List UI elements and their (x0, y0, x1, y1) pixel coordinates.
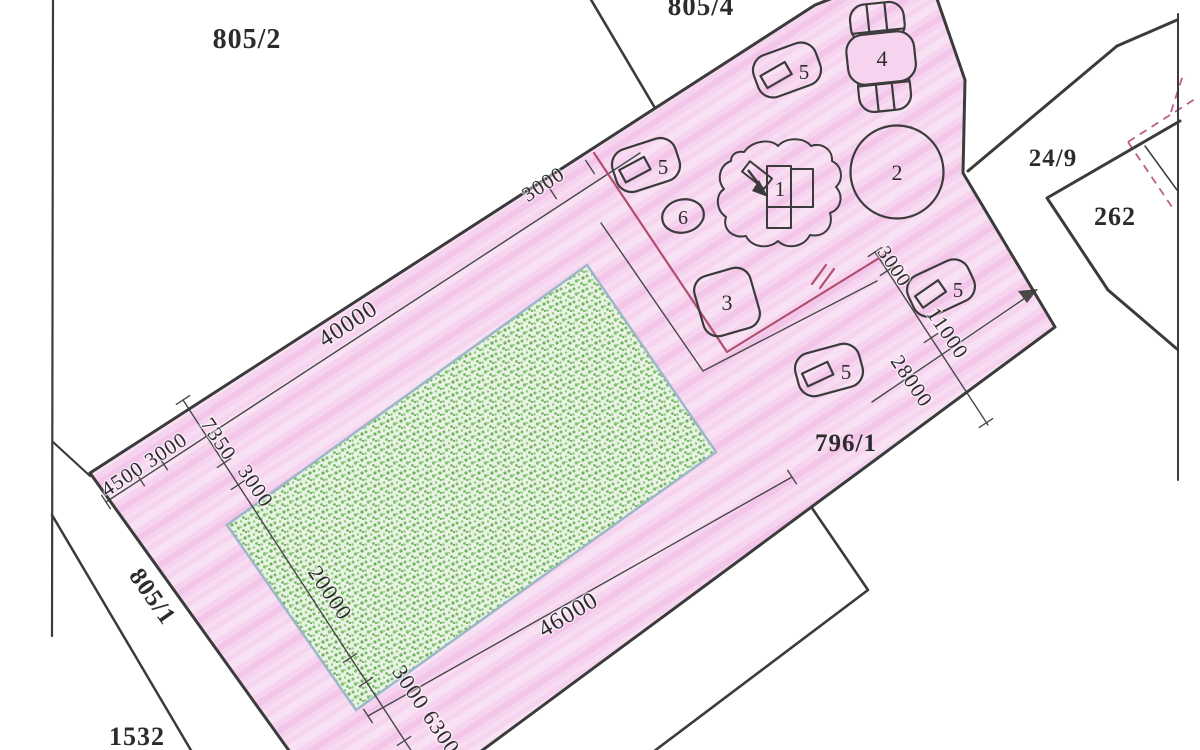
bench-label: 5 (658, 155, 669, 179)
equipment-4-label: 4 (877, 46, 888, 71)
left-corner-connector (53, 442, 90, 476)
left-vertical-boundary (52, 0, 53, 636)
equipment-1-label: 1 (775, 177, 786, 201)
parcel-label-1532: 1532 (109, 722, 165, 750)
parcel-label-796-1: 796/1 (815, 430, 877, 457)
parcel-label-805-4: 805/4 (668, 0, 735, 21)
bench-label: 5 (953, 278, 964, 302)
bench-label: 5 (799, 60, 810, 84)
dashed-boundary-lines (1128, 72, 1198, 207)
plan-canvas: 5 5 5 5 4 (0, 0, 1200, 750)
cadastral-site-plan: 5 5 5 5 4 (0, 0, 1200, 750)
parcel-label-805-2: 805/2 (213, 24, 282, 55)
parcel-label-262: 262 (1094, 202, 1136, 231)
equipment-3-label: 3 (722, 290, 733, 315)
thin-boundary-line (1145, 146, 1177, 190)
parcel-label-24-9: 24/9 (1029, 145, 1077, 172)
equipment-2-label: 2 (892, 160, 903, 185)
bench-label: 5 (841, 360, 852, 384)
parcel-805-4-divider (590, 0, 655, 108)
equipment-6-label: 6 (678, 207, 688, 229)
